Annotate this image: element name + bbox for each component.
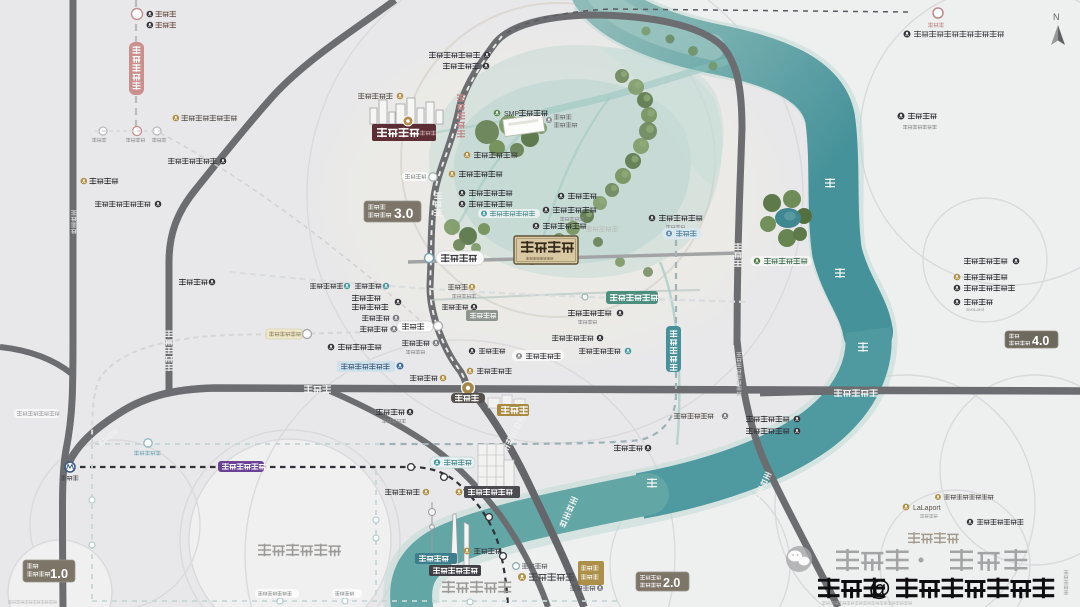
svg-text:LaLaport: LaLaport xyxy=(913,505,941,512)
svg-text:SunLand: SunLand xyxy=(966,307,985,312)
svg-text:3.0: 3.0 xyxy=(394,205,414,221)
svg-text:1.0: 1.0 xyxy=(50,566,68,581)
svg-text:4.0: 4.0 xyxy=(1032,334,1049,348)
svg-text:@: @ xyxy=(869,576,890,601)
svg-text:SMP: SMP xyxy=(504,111,520,118)
svg-text:2.0: 2.0 xyxy=(663,576,680,590)
svg-text:N: N xyxy=(1053,12,1060,22)
